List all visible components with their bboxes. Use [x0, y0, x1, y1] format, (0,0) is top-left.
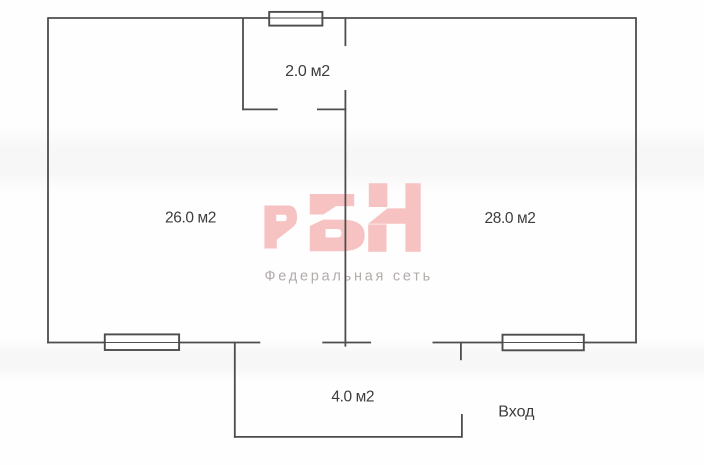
svg-text:28.0 м2: 28.0 м2	[485, 210, 536, 227]
svg-text:Федеральная сеть: Федеральная сеть	[265, 269, 433, 285]
svg-text:Вход: Вход	[498, 404, 535, 421]
svg-text:2.0 м2: 2.0 м2	[285, 63, 330, 80]
svg-text:4.0 м2: 4.0 м2	[331, 388, 374, 405]
svg-text:26.0 м2: 26.0 м2	[165, 209, 216, 226]
